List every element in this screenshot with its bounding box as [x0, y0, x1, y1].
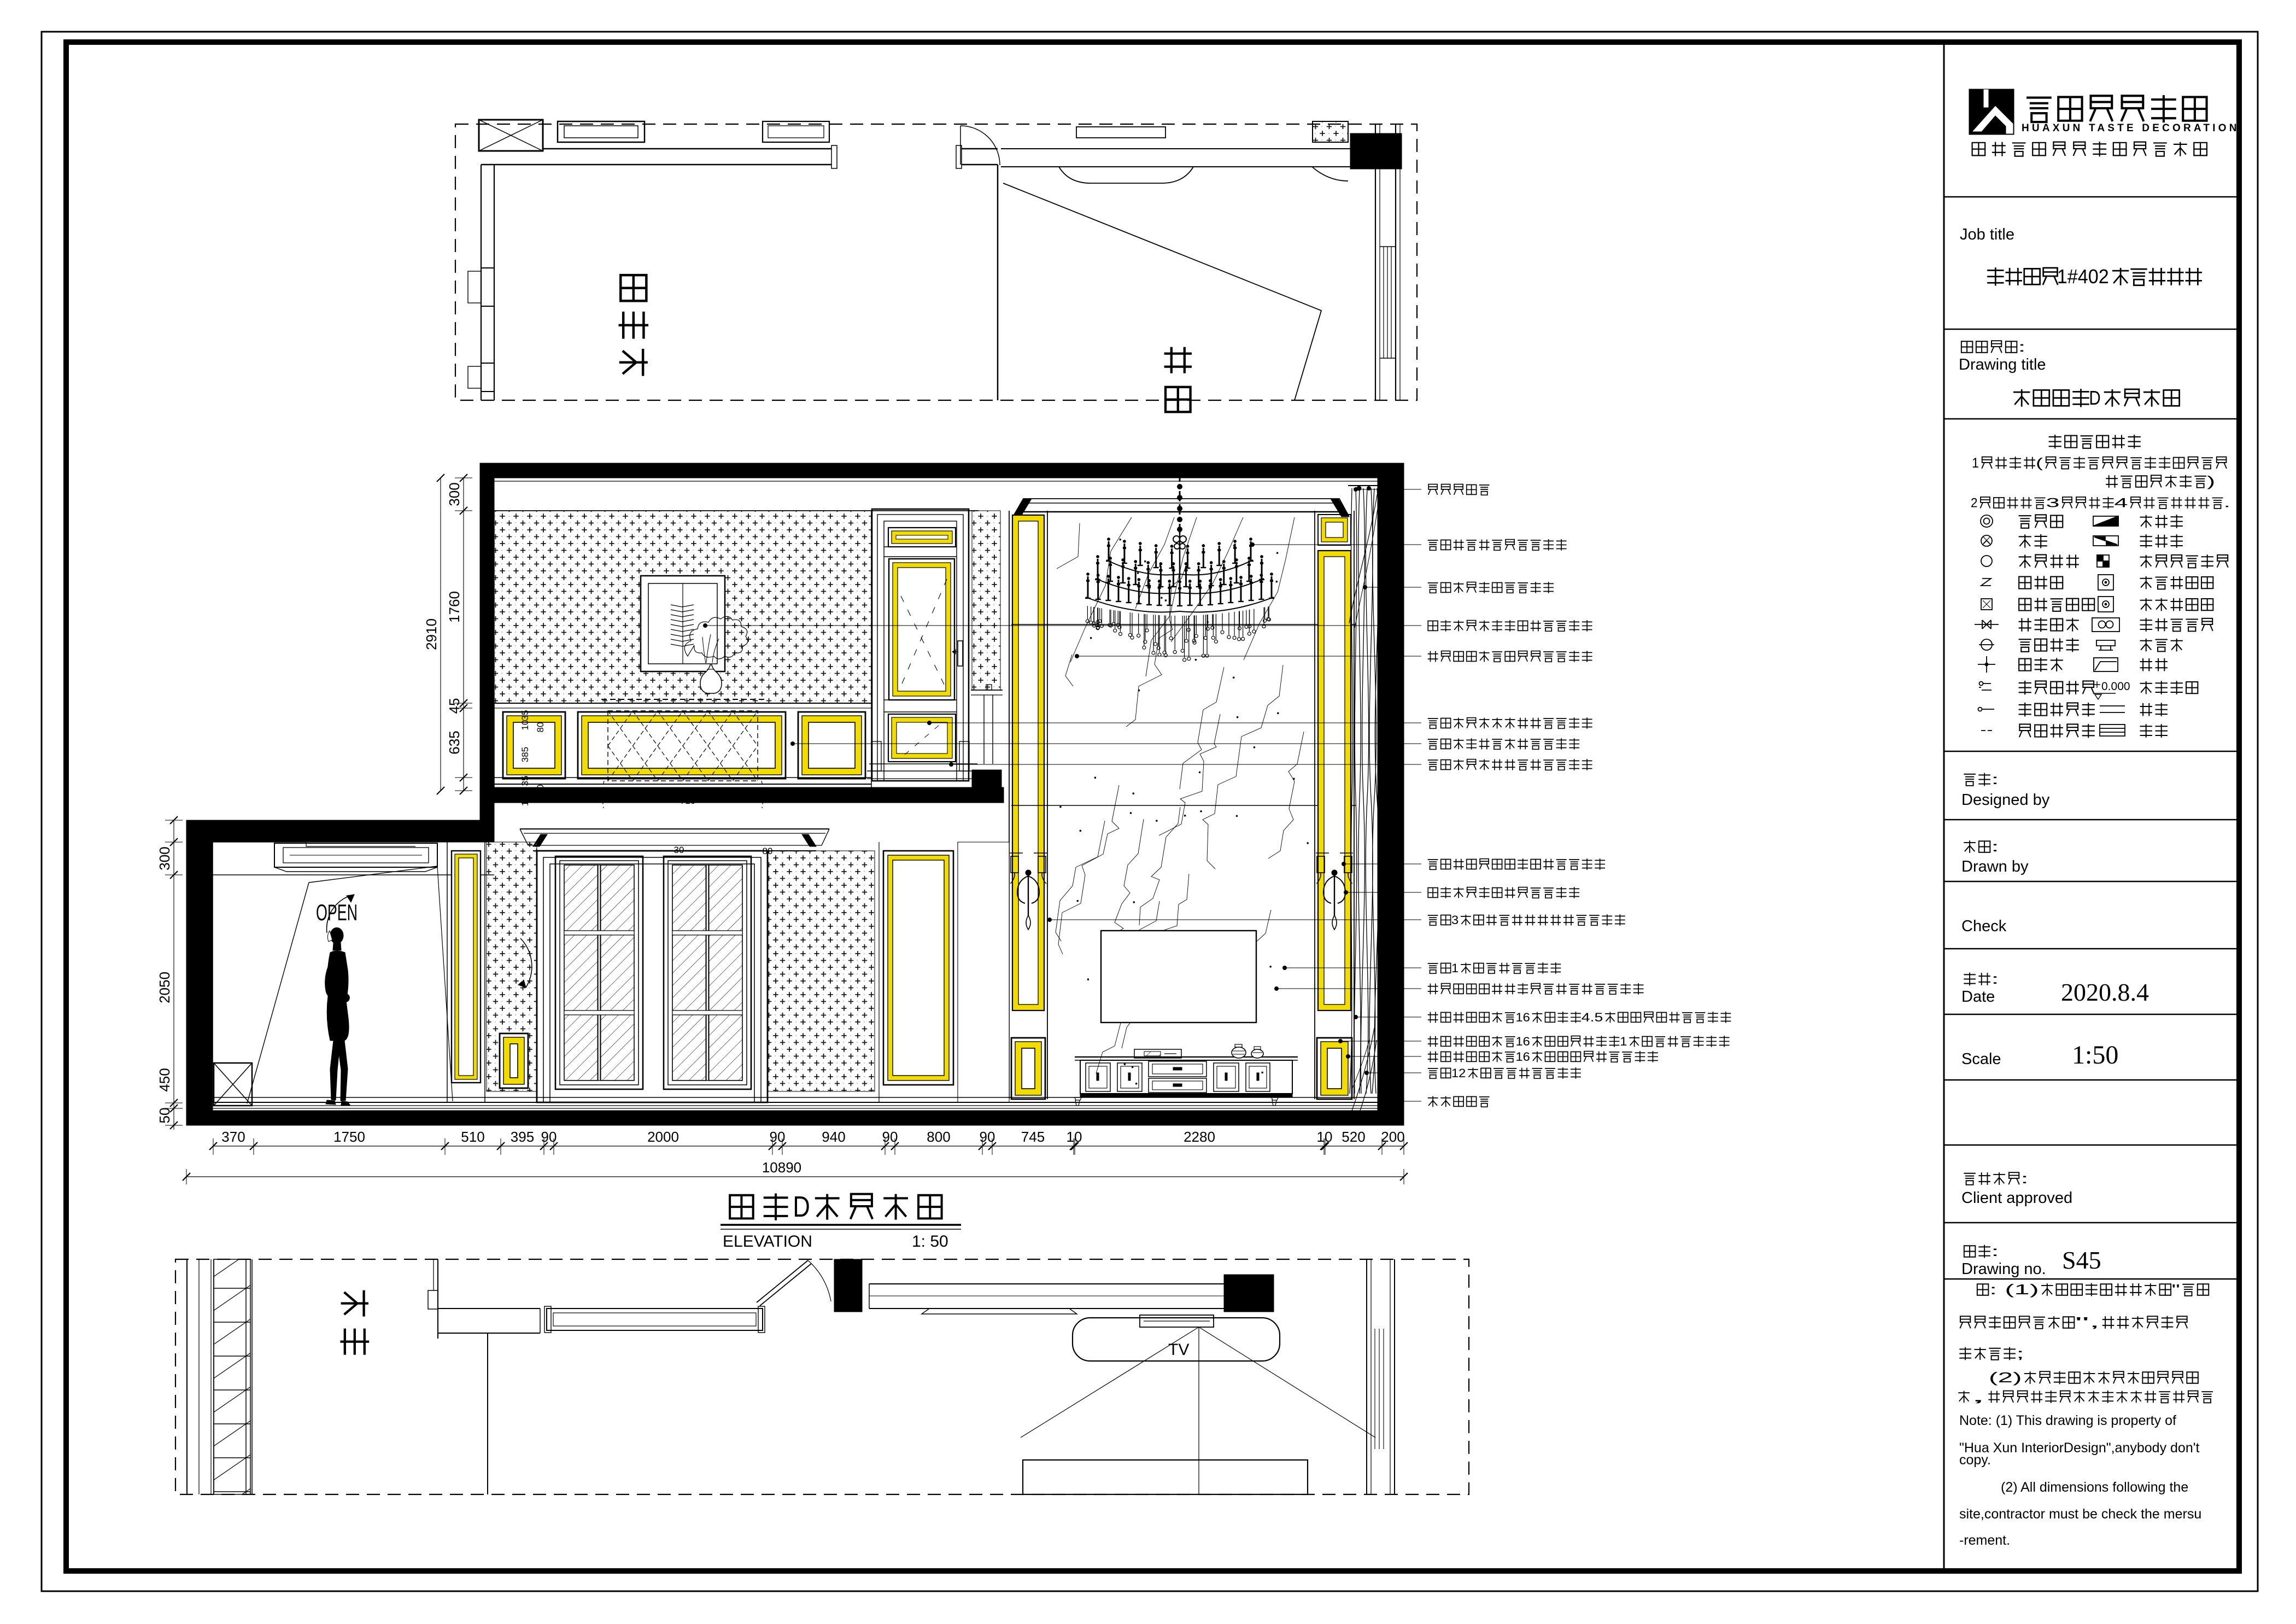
svg-text:S45: S45 — [2062, 1246, 2101, 1274]
svg-text:80: 80 — [763, 846, 773, 856]
svg-text:80: 80 — [535, 785, 546, 795]
svg-text:Drawn by: Drawn by — [1961, 858, 2029, 875]
svg-text:"Hua Xun InteriorDesign",anybo: "Hua Xun InteriorDesign",anybody don't — [1959, 1440, 2200, 1456]
svg-text:3: 3 — [1451, 913, 1459, 927]
svg-text:1750: 1750 — [333, 1129, 365, 1145]
svg-text:;: ; — [2016, 1346, 2024, 1362]
svg-text:370: 370 — [221, 1129, 245, 1145]
svg-text:120: 120 — [520, 791, 530, 806]
svg-text:",: ", — [2075, 1315, 2100, 1330]
svg-text:Note: (1) This drawing is pro: Note: (1) This drawing is property of — [1959, 1413, 2176, 1428]
svg-text:200: 200 — [1381, 1129, 1404, 1145]
svg-text:80: 80 — [535, 722, 546, 733]
svg-text:2910: 2910 — [423, 618, 440, 650]
svg-text:10: 10 — [1067, 1129, 1082, 1145]
svg-text:2: 2 — [1971, 496, 1978, 511]
svg-text:1: 1 — [1620, 1035, 1627, 1048]
svg-text:site,contractor must be check: site,contractor must be check the mersu — [1959, 1506, 2201, 1522]
svg-text:1:50: 1:50 — [2072, 1041, 2118, 1070]
svg-text:90: 90 — [541, 1129, 557, 1145]
svg-text:3: 3 — [2046, 496, 2060, 511]
svg-text:450: 450 — [156, 1068, 173, 1091]
svg-text::: : — [2018, 340, 2026, 355]
svg-text:12: 12 — [1451, 1066, 1466, 1080]
svg-text:Job title: Job title — [1960, 226, 2014, 243]
svg-text:0.000: 0.000 — [2101, 680, 2130, 693]
svg-text:ELEVATION: ELEVATION — [723, 1232, 812, 1251]
svg-text:-rement.: -rement. — [1959, 1533, 2010, 1548]
svg-text:Designed by: Designed by — [1961, 791, 2050, 809]
svg-text:(2): (2) — [1989, 1370, 2022, 1386]
svg-text:2050: 2050 — [156, 972, 173, 1003]
svg-text:35: 35 — [520, 710, 530, 721]
svg-text:635: 635 — [446, 731, 462, 754]
svg-text:50: 50 — [156, 1108, 173, 1124]
svg-text:Check: Check — [1961, 918, 2007, 935]
svg-text:45: 45 — [446, 698, 462, 714]
svg-text:510: 510 — [461, 1129, 484, 1145]
svg-text:385: 385 — [520, 747, 530, 762]
svg-text:4: 4 — [2115, 496, 2128, 511]
svg-text:800: 800 — [927, 1129, 950, 1145]
svg-text:4.5: 4.5 — [1582, 1010, 1603, 1024]
svg-text:1: 50: 1: 50 — [912, 1232, 948, 1251]
svg-text:": " — [2172, 1282, 2180, 1298]
svg-text:,: , — [1970, 1389, 1986, 1405]
svg-text:16: 16 — [1516, 1035, 1530, 1048]
svg-text::: : — [1991, 972, 1999, 987]
svg-text:300: 300 — [446, 482, 462, 506]
svg-text:90: 90 — [882, 1129, 898, 1145]
svg-text:.: . — [2224, 496, 2231, 511]
svg-text:Client approved: Client approved — [1961, 1189, 2072, 1207]
svg-text:90: 90 — [980, 1129, 995, 1145]
svg-text:745: 745 — [1021, 1129, 1045, 1145]
svg-text::: : — [1991, 839, 1999, 855]
svg-text:520: 520 — [1342, 1129, 1365, 1145]
svg-text:710: 710 — [680, 796, 695, 806]
svg-text:): ) — [2207, 474, 2215, 489]
svg-text::: : — [2020, 1171, 2029, 1187]
svg-text:1: 1 — [1972, 455, 1979, 471]
svg-text::: : — [1991, 1244, 1999, 1259]
svg-text:Drawing title: Drawing title — [1959, 356, 2046, 373]
svg-text:OPEN: OPEN — [316, 899, 358, 925]
svg-text:Drawing no.: Drawing no. — [1961, 1260, 2046, 1278]
svg-text:TV: TV — [1168, 1341, 1189, 1359]
svg-text:1: 1 — [1451, 961, 1459, 975]
svg-text:1760: 1760 — [446, 591, 462, 623]
svg-text:30: 30 — [674, 845, 684, 855]
svg-text:D: D — [793, 1190, 810, 1223]
svg-text:10: 10 — [1317, 1129, 1333, 1145]
svg-text:395: 395 — [511, 1129, 534, 1145]
svg-text:90: 90 — [770, 1129, 786, 1145]
svg-text:10: 10 — [520, 720, 530, 731]
svg-text:2020.8.4: 2020.8.4 — [2061, 978, 2149, 1006]
svg-text:copy.: copy. — [1959, 1452, 1991, 1468]
svg-text:2280: 2280 — [1184, 1129, 1215, 1145]
svg-text:16: 16 — [1516, 1010, 1530, 1024]
svg-text:Date: Date — [1961, 988, 1995, 1006]
svg-text:D: D — [2089, 387, 2100, 409]
svg-text:16: 16 — [1516, 1050, 1530, 1064]
svg-text:HUAXUN TASTE DECORATION: HUAXUN TASTE DECORATION — [2022, 122, 2240, 134]
svg-text:(: ( — [2036, 455, 2043, 471]
svg-text:300: 300 — [156, 846, 173, 870]
svg-text:10890: 10890 — [762, 1159, 801, 1176]
svg-text:(2) All dimensions following t: (2) All dimensions following the — [2001, 1480, 2188, 1495]
svg-text:: (1): : (1) — [1989, 1282, 2039, 1298]
svg-text:Scale: Scale — [1961, 1050, 2001, 1068]
svg-text:940: 940 — [822, 1129, 845, 1145]
svg-text:1#402: 1#402 — [2057, 265, 2109, 288]
svg-text::: : — [1991, 772, 1999, 787]
svg-text:35: 35 — [520, 776, 530, 786]
svg-text:800: 800 — [680, 786, 695, 796]
svg-text:2000: 2000 — [647, 1129, 679, 1145]
